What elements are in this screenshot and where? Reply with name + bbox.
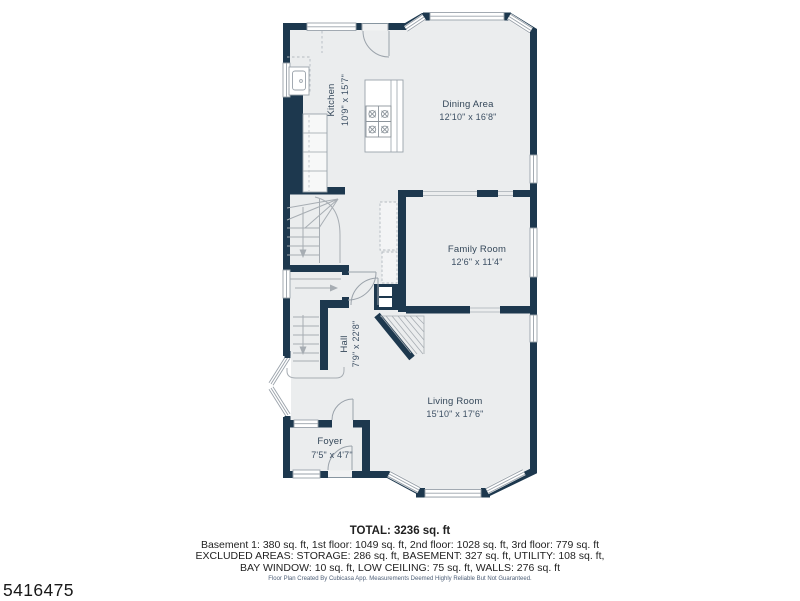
- window: [530, 228, 537, 277]
- window: [293, 470, 320, 478]
- window: [425, 490, 481, 498]
- kitchen-island: [365, 80, 403, 152]
- disclaimer: Floor Plan Created By Cubicasa App. Meas…: [0, 576, 800, 582]
- total-area: TOTAL: 3236 sq. ft: [0, 525, 800, 537]
- family-room-builtins: [380, 202, 397, 283]
- kitchen-sink: [289, 67, 309, 95]
- floor-plan: Kitchen 10'9" x 15'7" Dining Area 12'10"…: [0, 0, 800, 600]
- window: [530, 315, 537, 342]
- room-label-hall: Hall: [339, 335, 350, 352]
- excluded-areas-line-1: EXCLUDED AREAS: STORAGE: 286 sq. ft, BAS…: [0, 551, 800, 562]
- room-label-living-room: Living Room: [427, 396, 482, 407]
- room-label-kitchen: Kitchen: [326, 83, 337, 116]
- room-dims-foyer: 7'5" x 4'7": [311, 450, 353, 460]
- excluded-areas-line-2: BAY WINDOW: 10 sq. ft, LOW CEILING: 75 s…: [0, 563, 800, 574]
- room-dims-living-room: 15'10" x 17'6": [426, 409, 483, 419]
- window: [307, 23, 356, 31]
- room-dims-hall: 7'9" x 22'8": [351, 321, 361, 368]
- page: { "page": { "photo_id": "5416475", "back…: [0, 0, 800, 600]
- hall-bay-window: [269, 351, 291, 423]
- room-dims-kitchen: 10'9" x 15'7": [340, 74, 350, 126]
- room-dims-dining-area: 12'10" x 16'8": [439, 112, 496, 122]
- window: [283, 270, 290, 298]
- window: [430, 13, 504, 21]
- kitchen-counter: [303, 114, 327, 192]
- room-label-foyer: Foyer: [317, 436, 342, 447]
- room-dims-family-room: 12'6" x 11'4": [451, 257, 502, 267]
- room-label-family-room: Family Room: [448, 244, 506, 255]
- window: [294, 420, 318, 428]
- room-label-dining-area: Dining Area: [442, 99, 494, 110]
- window: [530, 155, 537, 183]
- photo-id: 5416475: [3, 580, 74, 601]
- area-summary: TOTAL: 3236 sq. ft Basement 1: 380 sq. f…: [0, 525, 800, 574]
